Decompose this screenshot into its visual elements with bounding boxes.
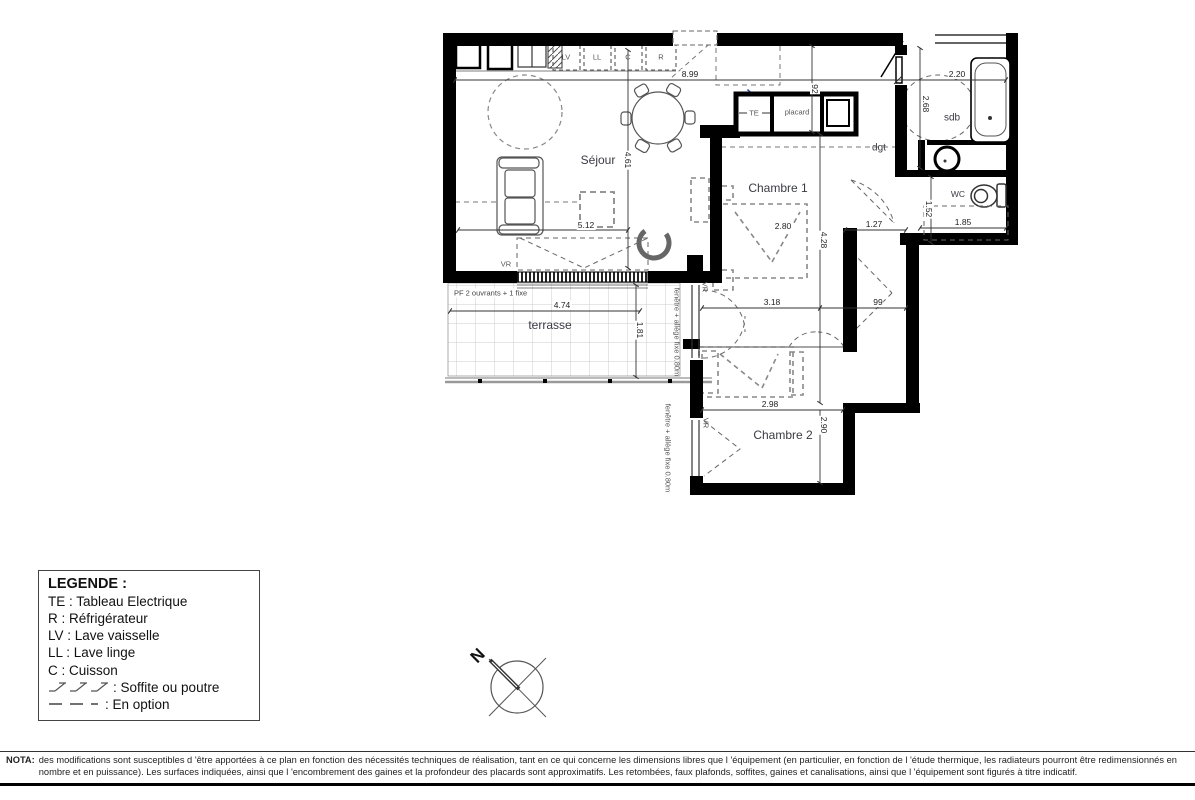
room-label-chambre2: Chambre 2 <box>753 428 812 442</box>
legend-title: LEGENDE : <box>48 576 250 592</box>
bathtub-icon <box>971 58 1010 142</box>
window-label-vr-sejour: VR <box>501 260 511 269</box>
dim-terrasse-width: 4.74 <box>553 300 572 310</box>
legend-item-option-label: : En option <box>105 696 170 713</box>
compass-icon <box>489 658 546 717</box>
dim-bed-width: 2.80 <box>774 221 793 231</box>
sofa-icon <box>497 157 543 235</box>
dim-entry-width: 92 <box>810 83 820 94</box>
window-label-vr-chambre2: VR <box>702 418 711 428</box>
dim-hall-width: 99 <box>872 297 883 307</box>
dim-chambre1-depth: 4.28 <box>819 231 829 250</box>
legend-item-ll: LL : Lave linge <box>48 644 250 661</box>
dim-chambre2-depth: 2.90 <box>819 416 829 435</box>
equipment-label-lv: LV <box>562 53 571 62</box>
window-label-fenetre-chambre2: fenêtre + allège fixe 0.80m <box>664 404 673 493</box>
walls <box>443 33 1018 495</box>
dim-sejour-width: 8.99 <box>681 69 700 79</box>
room-label-sdb: sdb <box>944 113 960 124</box>
toilet-icon <box>971 184 1006 207</box>
closet-icon <box>790 352 803 395</box>
window-label-pf: PF 2 ouvrants + 1 fixe <box>452 289 529 298</box>
room-label-terrasse: terrasse <box>528 318 571 332</box>
dim-sejour-inner: 5.12 <box>577 220 596 230</box>
legend-item-option: : En option <box>48 696 250 713</box>
armchair-icon <box>639 231 669 258</box>
bathroom-fixtures <box>924 58 1010 240</box>
dim-dgt-width: 1.27 <box>865 219 884 229</box>
legend-item-soffite: : Soffite ou poutre <box>48 679 250 696</box>
desk-icon <box>691 178 709 222</box>
equipment-label-ll: LL <box>593 53 601 62</box>
dim-sdb-depth: 2.68 <box>921 95 931 114</box>
dim-chambre2-width: 2.98 <box>761 399 780 409</box>
room-label-wc: WC <box>951 189 965 199</box>
equipment-label-c: C <box>625 53 630 62</box>
equipment-label-te: TE <box>749 109 759 118</box>
sink-hatch-icon <box>548 43 562 68</box>
equipment-label-r: R <box>658 53 663 62</box>
nota-label: NOTA: <box>6 754 35 779</box>
bed-icon <box>699 347 793 397</box>
nota-text: des modifications sont susceptibles d 'ê… <box>39 754 1189 779</box>
room-label-placard: placard <box>785 108 810 117</box>
dim-chambre1-width: 3.18 <box>763 297 782 307</box>
dim-wc-depth: 1.52 <box>924 200 934 219</box>
room-label-dgt: dgt <box>872 143 886 154</box>
dim-wc-width: 1.85 <box>954 217 973 227</box>
optional-table-icon <box>488 75 562 149</box>
sink-icon <box>935 147 959 174</box>
dining-table-icon <box>621 82 695 153</box>
room-label-chambre1: Chambre 1 <box>748 181 807 195</box>
window-label-fenetre-chambre1: fenêtre + allège fixe 0.80m <box>673 288 682 377</box>
legend-item-te: TE : Tableau Electrique <box>48 593 250 610</box>
room-label-sejour: Séjour <box>581 153 616 167</box>
bed-icon <box>714 204 807 278</box>
legend-item-c: C : Cuisson <box>48 662 250 679</box>
dim-terrasse-depth: 1.81 <box>635 321 645 340</box>
option-symbol-icon <box>48 699 102 709</box>
legend-item-lv: LV : Lave vaisselle <box>48 627 250 644</box>
legend-item-r: R : Réfrigérateur <box>48 610 250 627</box>
floor-plan-page: Séjour Chambre 1 Chambre 2 sdb WC dgt te… <box>0 0 1195 800</box>
nota-block: NOTA: des modifications sont susceptible… <box>0 751 1195 786</box>
dim-sdb-width: 2.20 <box>948 69 967 79</box>
window-label-vr-chambre1: VR <box>701 282 710 292</box>
legend-item-soffite-label: : Soffite ou poutre <box>113 679 219 696</box>
soffite-symbol-icon <box>48 681 110 694</box>
dim-sejour-depth: 4.61 <box>623 151 633 170</box>
legend-box: LEGENDE : TE : Tableau Electrique R : Ré… <box>38 570 260 721</box>
